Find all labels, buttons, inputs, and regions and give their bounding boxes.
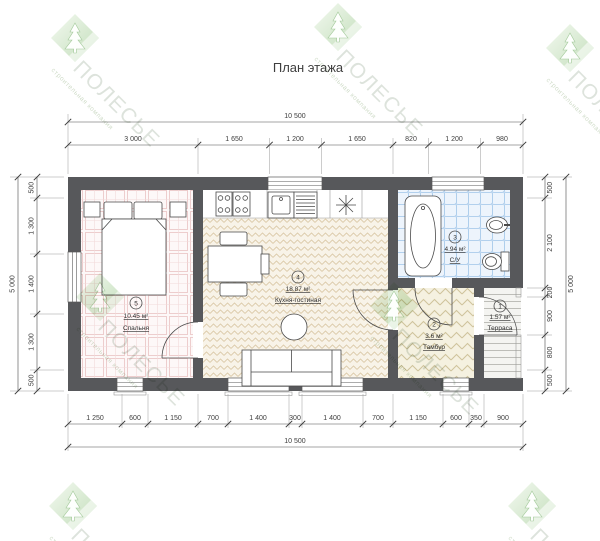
dim-label: 1 400 [29, 275, 36, 293]
wall-bath-bottom-right [452, 278, 523, 288]
sofa [242, 350, 341, 386]
dim-label: 1 150 [409, 415, 427, 422]
bathtub [405, 196, 441, 276]
polesie-logo-icon [51, 14, 99, 62]
dim-label: 900 [497, 415, 509, 422]
watermark-name: ПОЛЕСЬЕ [67, 524, 163, 541]
dim-label: 1 400 [323, 415, 341, 422]
window-bathroom-top [432, 177, 484, 190]
wall-vest-terrace-lower [474, 335, 484, 378]
window-kitchen-top [268, 177, 322, 190]
round-table [281, 314, 307, 340]
terrace-area: 1.57 м² [489, 314, 511, 321]
terrace-floor [484, 288, 521, 378]
dim-label: 2 100 [547, 234, 554, 252]
fridge-snowflake-icon [336, 195, 356, 215]
bed [102, 219, 166, 295]
stove-icon [216, 192, 250, 216]
floorplan-page: План этажа [0, 0, 600, 541]
dim-label: 300 [289, 415, 301, 422]
chair-bottom [220, 283, 247, 296]
dim-label: 350 [470, 415, 482, 422]
dim-label: 1 250 [86, 415, 104, 422]
door-gap-bedroom [193, 322, 203, 358]
dim-bottom: 1 250 600 1 150 700 1 400 300 1 400 700 … [65, 415, 526, 450]
bathroom-number: 3 [453, 235, 457, 242]
wall-bath-bottom-left [398, 278, 415, 288]
nightstand-right [170, 202, 186, 217]
wall-bedroom-kitchen-upper [193, 190, 203, 322]
watermark: ПОЛЕСЬЕ строительная компания [48, 482, 163, 541]
dining-table [208, 246, 262, 282]
kitchen-sink-icon [268, 192, 317, 218]
dim-right-total: 5 000 [568, 275, 575, 293]
dim-right: 500 2 100 200 900 800 500 5 000 [542, 174, 575, 394]
dim-label: 600 [129, 415, 141, 422]
dim-label: 500 [29, 374, 36, 386]
dim-label: 1 150 [164, 415, 182, 422]
dim-label: 900 [547, 310, 554, 322]
terrace-number: 1 [498, 304, 502, 311]
dim-label: 500 [547, 374, 554, 386]
kitchen-number: 4 [296, 275, 300, 282]
dim-label: 1 400 [249, 415, 267, 422]
dim-label: 1 650 [348, 136, 366, 143]
bathroom-area: 4.94 м² [444, 246, 466, 253]
chair-top [220, 232, 247, 245]
polesie-logo-icon [546, 24, 594, 72]
dim-label: 500 [547, 182, 554, 194]
dim-label: 1 650 [225, 136, 243, 143]
dim-left-total: 5 000 [10, 275, 17, 293]
chair-side [261, 254, 269, 274]
door-gap-terrace [474, 297, 484, 335]
floor-plan-drawing: План этажа [0, 0, 600, 541]
wall-kitchen-bath-upper [388, 190, 398, 290]
toilet [483, 252, 510, 271]
vestibule-number: 2 [432, 322, 436, 329]
wall-right [510, 177, 523, 288]
watermark: ПОЛЕСЬЕ строительная компания [313, 3, 428, 141]
dim-label: 1 200 [286, 136, 304, 143]
dim-label: 1 300 [29, 217, 36, 235]
dim-label: 980 [496, 136, 508, 143]
pillow-right [134, 202, 162, 219]
bedroom-name: Спальня [123, 325, 150, 332]
dim-label: 200 [547, 287, 554, 299]
bedroom-area: 10.45 м² [124, 313, 150, 320]
dim-label: 700 [372, 415, 384, 422]
dim-label: 1 200 [445, 136, 463, 143]
kitchen-area: 18.87 м² [286, 286, 312, 293]
pillow-left [104, 202, 132, 219]
wall-bedroom-kitchen-lower [193, 358, 203, 378]
door-gap-bathroom [415, 278, 452, 288]
bedroom-number: 5 [134, 301, 138, 308]
dim-label: 1 300 [29, 333, 36, 351]
watermark-name: ПОЛЕСЬЕ [526, 524, 600, 541]
wall-vest-terrace-upper [474, 288, 484, 297]
polesie-logo-icon [49, 482, 97, 530]
dim-label: 500 [29, 182, 36, 194]
nightstand-left [84, 202, 100, 217]
dim-label: 700 [207, 415, 219, 422]
dim-top-total: 10 500 [284, 113, 306, 120]
kitchen-counter [203, 190, 388, 218]
watermark: ПОЛЕСЬЕ строительная компания [507, 482, 600, 541]
kitchen-name: Кухня-гостиная [275, 297, 321, 304]
terrace-name: Терраса [488, 325, 513, 332]
polesie-logo-icon [508, 482, 556, 530]
watermark: ПОЛЕСЬЕ строительная компания [50, 14, 165, 152]
bathroom-name: С/У [450, 257, 462, 264]
dim-left: 500 1 300 1 400 1 300 500 5 000 [10, 174, 41, 394]
vestibule-area: 3.6 м² [425, 333, 443, 340]
polesie-logo-icon [314, 3, 362, 51]
dim-label: 600 [450, 415, 462, 422]
dim-bottom-total: 10 500 [284, 438, 306, 445]
dim-label: 800 [547, 346, 554, 358]
watermark: ПОЛЕСЬЕ строительная компания [545, 24, 600, 162]
